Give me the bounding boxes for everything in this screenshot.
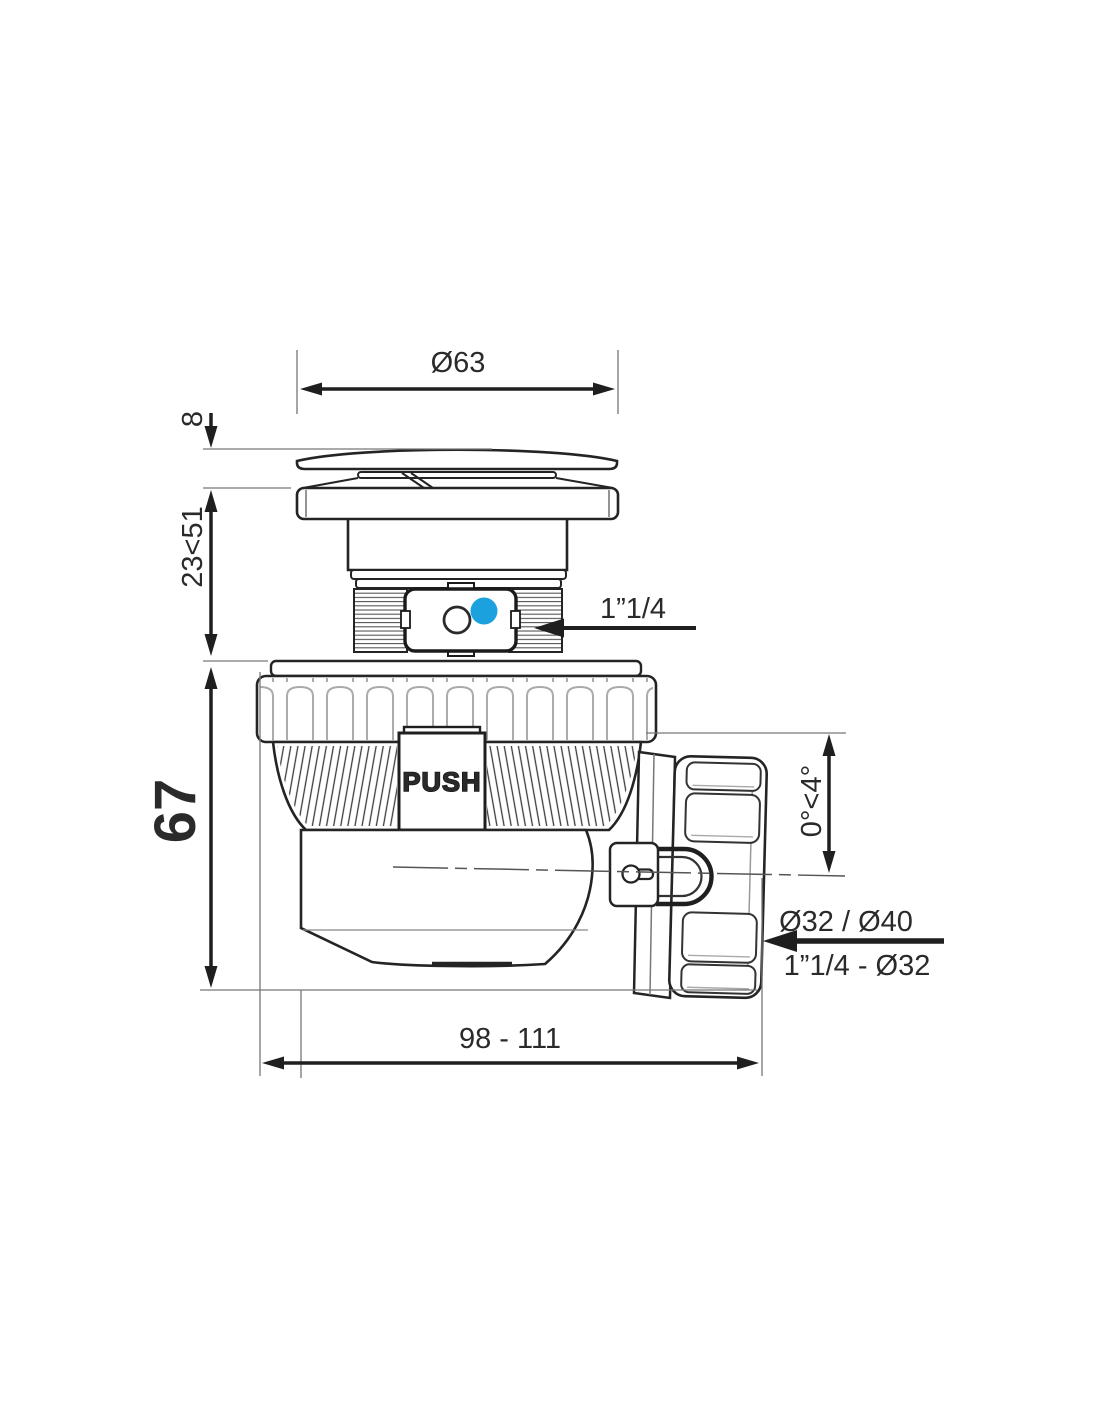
indicator-blue-dot [471, 598, 498, 625]
dimension-diameter-63: Ø63 [297, 347, 618, 414]
cap-assembly [297, 450, 618, 588]
trap-body [301, 830, 593, 966]
cap-flange [297, 488, 618, 519]
collar-top-plate [271, 661, 641, 676]
label-total-length: 98 - 111 [459, 1023, 561, 1055]
cap-dome-lid [297, 450, 617, 469]
label-inlet-thread: 1”1/4 [600, 593, 666, 625]
label-diameter-63: Ø63 [431, 347, 486, 379]
cap-neck [348, 519, 567, 570]
label-install-depth: 23<51 [177, 506, 209, 587]
callout-outlet: Ø32 / Ø40 1”1/4 - Ø32 [763, 906, 944, 982]
push-button-label: PUSH [402, 767, 481, 797]
cap-strainer [303, 472, 613, 488]
keyhole-hole [623, 866, 640, 883]
tension-slider [401, 583, 520, 656]
label-cap-thickness: 8 [177, 411, 209, 427]
outlet-nut [669, 756, 767, 998]
technical-drawing-canvas: PUSH [0, 0, 1100, 1422]
dimension-install-depth: 23<51 [177, 490, 268, 661]
cap-ring-upper [351, 570, 566, 579]
label-body-height: 67 [143, 779, 208, 844]
label-tilt-range: 0°<4° [796, 765, 828, 837]
push-button: PUSH [399, 727, 485, 830]
indicator-ring [444, 607, 470, 633]
trap-body-outline [301, 830, 593, 966]
label-outlet-dia: Ø32 / Ø40 [779, 906, 913, 938]
label-outlet-thread: 1”1/4 - Ø32 [784, 950, 931, 982]
